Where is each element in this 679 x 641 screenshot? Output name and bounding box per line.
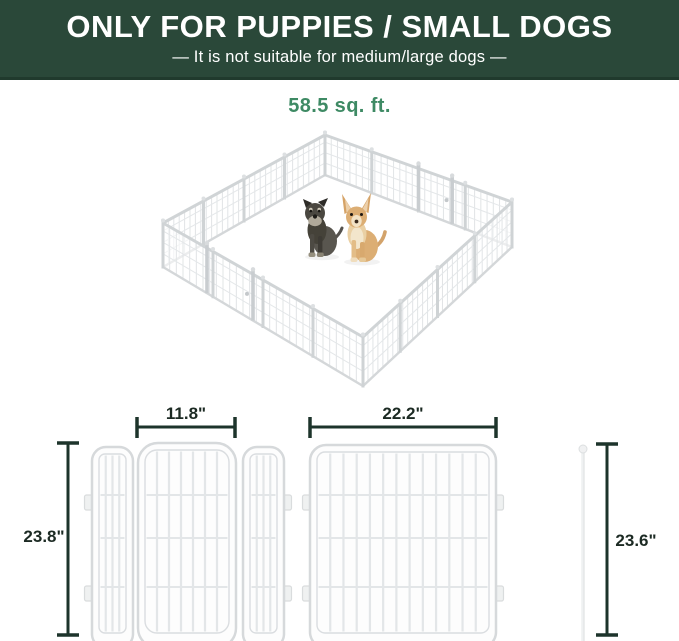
dim-door-section-height: 23.8" <box>23 443 79 635</box>
dog-chihuahua-icon <box>342 193 385 265</box>
area-size-label: 58.5 sq. ft. <box>0 95 679 118</box>
panel-diagram <box>303 445 504 641</box>
dog-schnauzer-icon <box>303 198 342 260</box>
dim-pole-height: 23.6" <box>596 444 657 635</box>
panel-width-label: 22.2" <box>382 404 423 423</box>
dim-door-width: 11.8" <box>137 404 235 438</box>
banner-title: ONLY FOR PUPPIES / SMALL DOGS <box>66 10 612 44</box>
pole-height-label: 23.6" <box>615 531 656 550</box>
dim-panel-width: 22.2" <box>310 404 496 438</box>
banner-subtitle: — It is not suitable for medium/large do… <box>172 48 506 67</box>
dimension-diagram: 23.8" 11.8" 22.2" 23.6" <box>0 400 679 641</box>
connecting-pole <box>579 445 587 641</box>
door-width-label: 11.8" <box>166 404 206 423</box>
playpen-illustration <box>0 118 679 400</box>
door-section-diagram <box>85 443 292 641</box>
door-section-height-label: 23.8" <box>23 527 64 546</box>
dogs <box>303 193 385 265</box>
warning-banner: ONLY FOR PUPPIES / SMALL DOGS — It is no… <box>0 0 679 80</box>
